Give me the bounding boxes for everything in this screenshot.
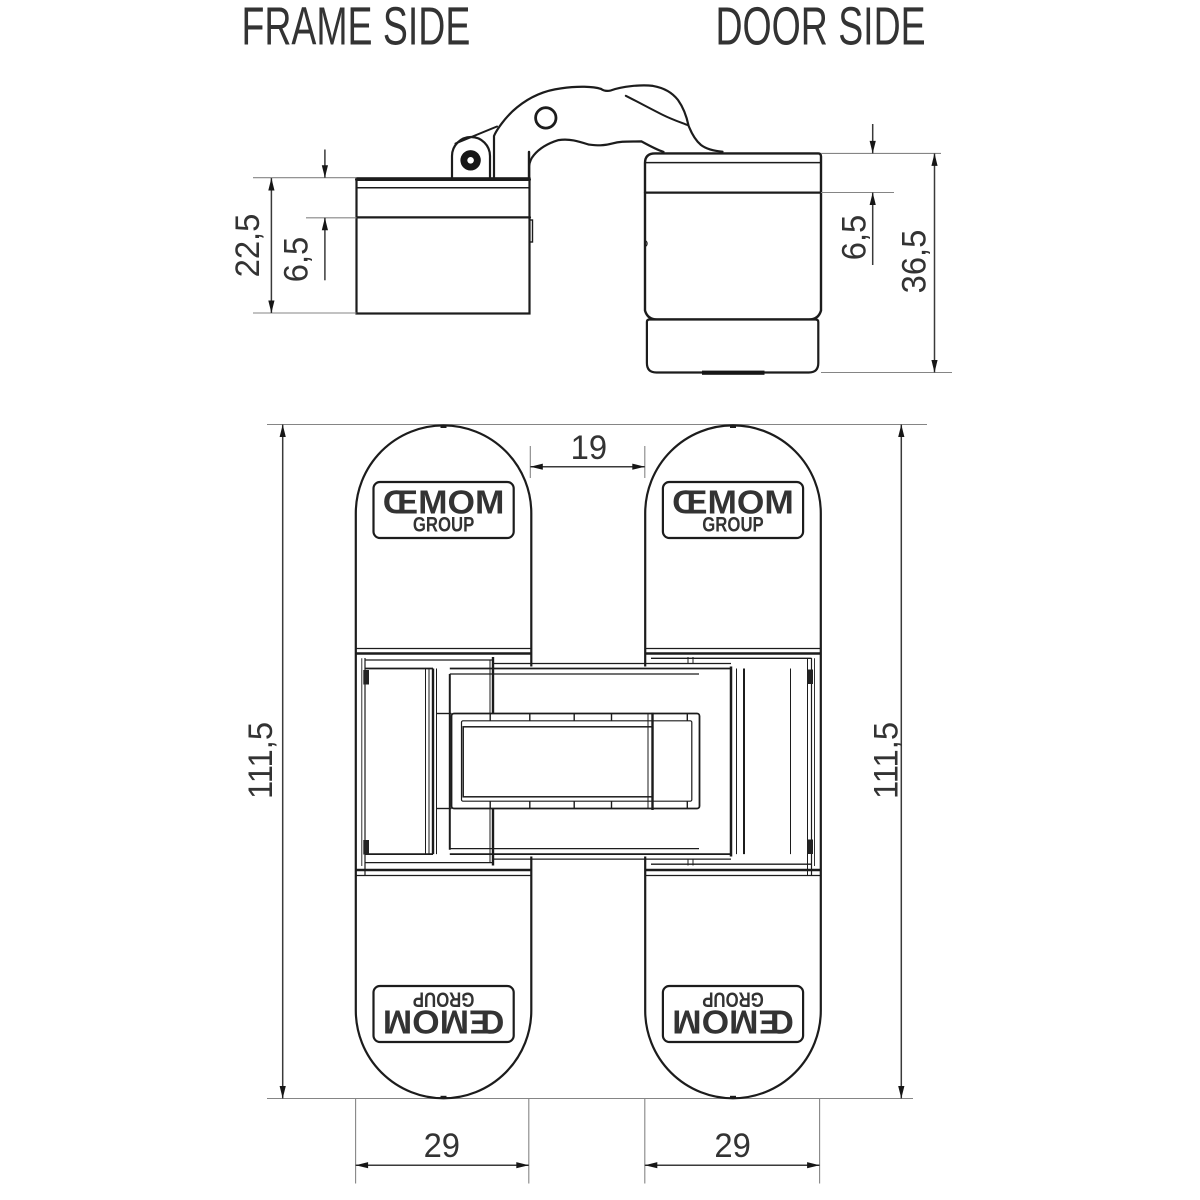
svg-text:29: 29 bbox=[714, 1127, 750, 1165]
svg-text:GROUP: GROUP bbox=[413, 514, 475, 537]
svg-text:22,5: 22,5 bbox=[229, 214, 267, 278]
svg-text:FRAME SIDE: FRAME SIDE bbox=[242, 0, 471, 56]
svg-text:29: 29 bbox=[424, 1127, 460, 1165]
svg-text:36,5: 36,5 bbox=[896, 230, 934, 294]
svg-text:6,5: 6,5 bbox=[278, 237, 316, 283]
svg-text:6,5: 6,5 bbox=[836, 215, 874, 261]
svg-text:GROUP: GROUP bbox=[413, 987, 475, 1010]
svg-text:111,5: 111,5 bbox=[242, 722, 280, 799]
svg-text:DOOR SIDE: DOOR SIDE bbox=[716, 0, 926, 56]
svg-text:19: 19 bbox=[571, 429, 607, 467]
svg-text:GROUP: GROUP bbox=[702, 987, 764, 1010]
svg-text:111,5: 111,5 bbox=[868, 722, 906, 799]
svg-text:GROUP: GROUP bbox=[702, 514, 764, 537]
